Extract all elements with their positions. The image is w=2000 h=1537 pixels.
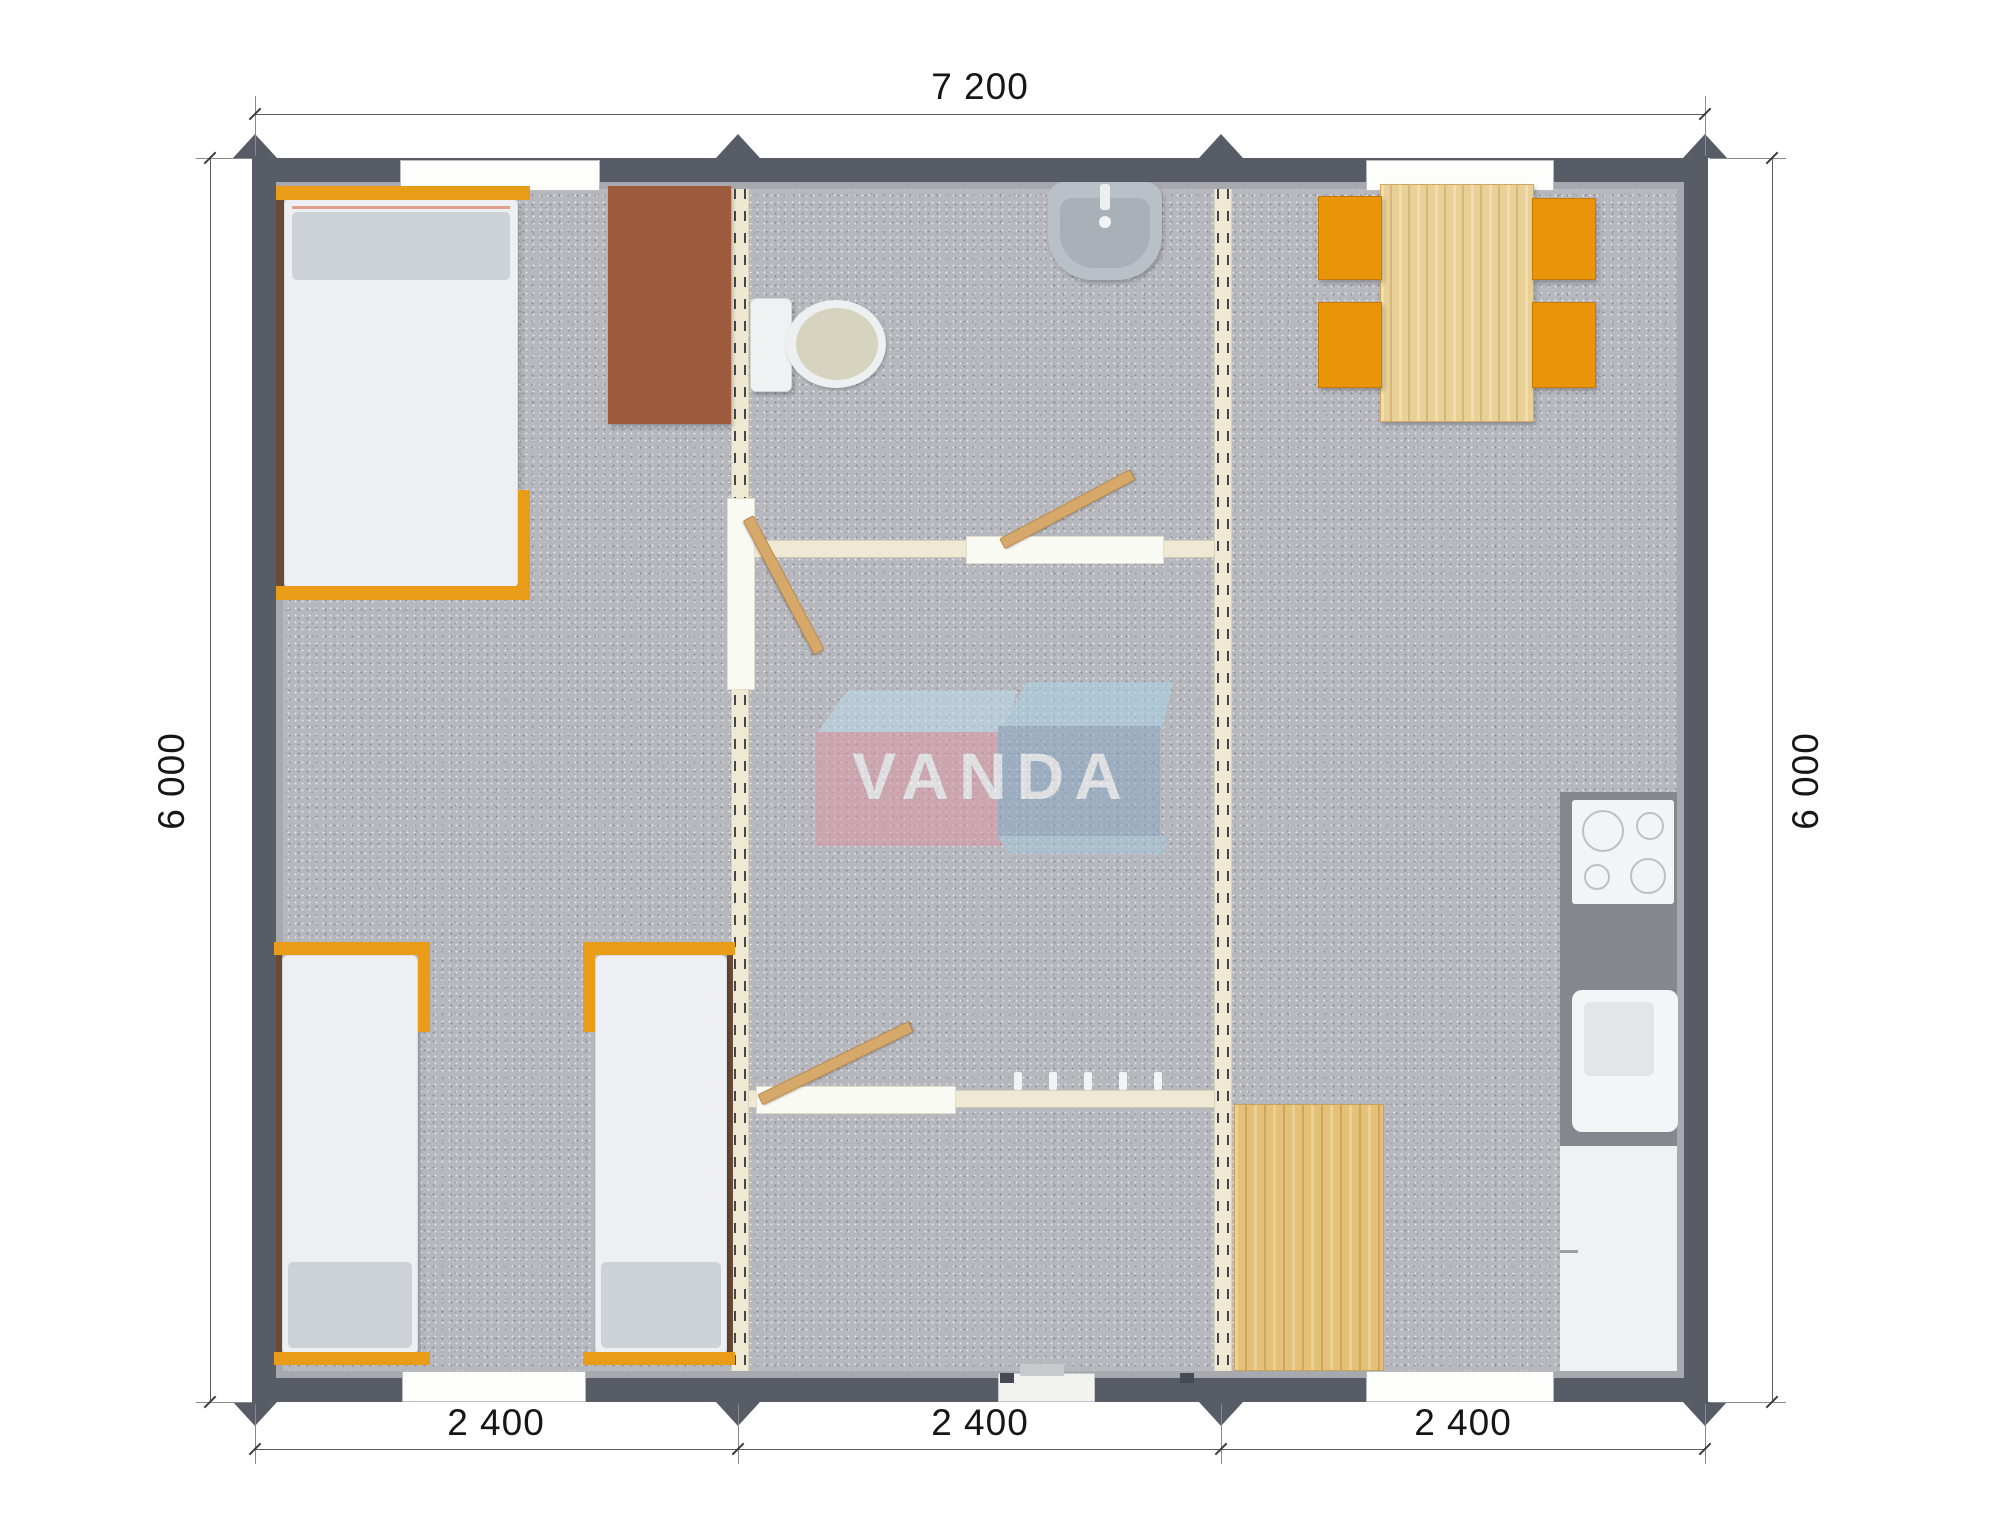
extension-line (196, 1402, 252, 1403)
pillow-icon (292, 212, 510, 280)
toilet-seat (796, 308, 878, 380)
partition-wall-left (731, 189, 749, 1371)
floor-plan-canvas: VANDA 7 200 2 400 2 400 2 400 6 000 6 00… (0, 0, 2000, 1537)
kitchen-sink-icon (1572, 990, 1678, 1132)
bed-frame (518, 490, 530, 600)
extension-line (1221, 1404, 1222, 1464)
module-corner-icon (1199, 134, 1243, 158)
pillow-icon (601, 1262, 721, 1348)
stove-burner (1630, 858, 1666, 894)
extension-line (1710, 1402, 1786, 1403)
coat-hooks-icon (1014, 1072, 1022, 1090)
kitchen-cabinet-icon (1560, 1146, 1677, 1371)
window-icon (1366, 1371, 1554, 1402)
watermark-text: VANDA (820, 736, 1164, 816)
logo-blue-box-top (995, 682, 1173, 728)
bed-shadow (727, 955, 733, 1355)
bed-frame (418, 942, 430, 1032)
bed-frame (276, 186, 530, 200)
coat-hooks-icon (1049, 1072, 1057, 1090)
dimension-label-top: 7 200 (880, 66, 1080, 108)
dimension-line-right (1772, 158, 1773, 1402)
extension-line (1705, 96, 1706, 156)
window-icon (402, 1371, 586, 1402)
door-opening (966, 536, 1164, 564)
faucet-icon (1100, 184, 1110, 210)
dining-table-icon (1380, 184, 1534, 422)
logo-red-box-top (816, 690, 1016, 734)
chair-icon (1318, 302, 1382, 388)
bed-frame (583, 942, 595, 1032)
dimension-label-bottom-1: 2 400 (396, 1402, 596, 1444)
bed-frame (274, 942, 430, 955)
wardrobe-icon (608, 186, 731, 424)
coat-hooks-icon (1084, 1072, 1092, 1090)
chair-icon (1318, 196, 1382, 280)
coat-hooks-icon (1119, 1072, 1127, 1090)
dimension-line-top (255, 114, 1705, 115)
bed-blanket-line (292, 206, 510, 209)
wall-left (252, 158, 276, 1402)
extension-line (1710, 158, 1786, 159)
watermark-logo: VANDA (812, 682, 1172, 858)
extension-line (255, 1404, 256, 1464)
dimension-label-bottom-3: 2 400 (1363, 1402, 1563, 1444)
stove-burner (1636, 812, 1664, 840)
extension-line (255, 96, 256, 156)
extension-line (738, 1404, 739, 1464)
dimension-label-right: 6 000 (1785, 681, 1827, 881)
module-corner-icon (716, 134, 760, 158)
wall-liner-right (1677, 182, 1684, 1378)
bed-frame (583, 1352, 735, 1365)
bed-shadow (276, 200, 284, 586)
chair-icon (1532, 302, 1596, 388)
faucet-icon (1099, 216, 1111, 228)
dimension-line-left (210, 158, 211, 1402)
dimension-label-left: 6 000 (151, 681, 193, 881)
cabinet-handle (1560, 1250, 1578, 1253)
door-frame-mark (1180, 1373, 1194, 1383)
wall-right (1684, 158, 1708, 1402)
pillow-icon (288, 1262, 412, 1348)
logo-blue-box-flap (998, 836, 1168, 854)
bed-frame (274, 1352, 430, 1365)
cooktop-icon (1572, 800, 1674, 904)
extension-line (1705, 1404, 1706, 1464)
sink-basin (1584, 1002, 1654, 1076)
bed-frame (276, 586, 530, 600)
stove-burner (1582, 810, 1624, 852)
extension-line (196, 158, 252, 159)
entrance-step-icon (1020, 1364, 1064, 1376)
door-frame-mark (1000, 1373, 1014, 1383)
partition-wall-right (1214, 189, 1232, 1371)
coat-hooks-icon (1154, 1072, 1162, 1090)
dimension-line-bottom (255, 1449, 1705, 1450)
bed-frame (583, 942, 735, 955)
dimension-label-bottom-2: 2 400 (880, 1402, 1080, 1444)
chair-icon (1532, 198, 1596, 280)
wood-mat-icon (1234, 1104, 1384, 1371)
stove-burner (1584, 864, 1610, 890)
